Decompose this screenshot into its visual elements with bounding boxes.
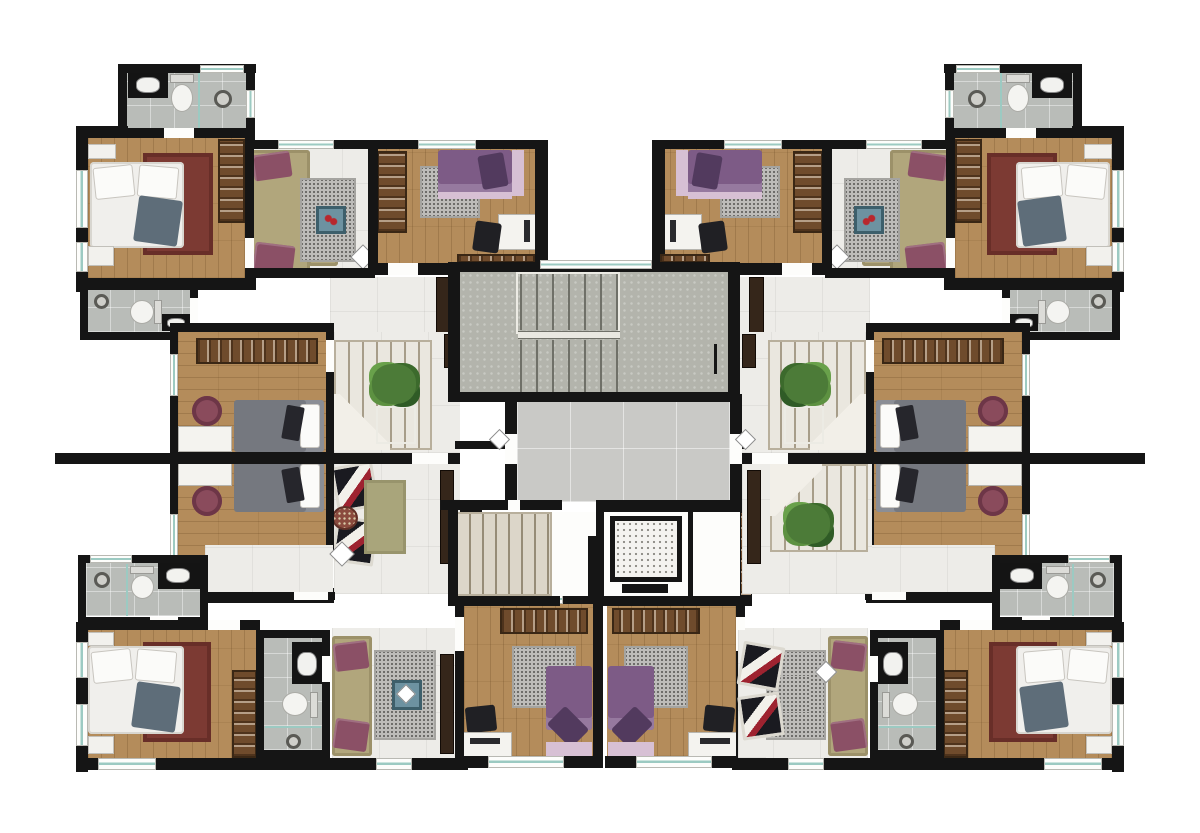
plant	[786, 504, 830, 544]
tv-cabinet	[747, 470, 761, 564]
floor-plan	[0, 0, 1200, 833]
right-variations	[0, 0, 1200, 833]
armchair	[736, 641, 785, 692]
napkin-decor	[815, 661, 838, 684]
armchair	[737, 691, 785, 740]
